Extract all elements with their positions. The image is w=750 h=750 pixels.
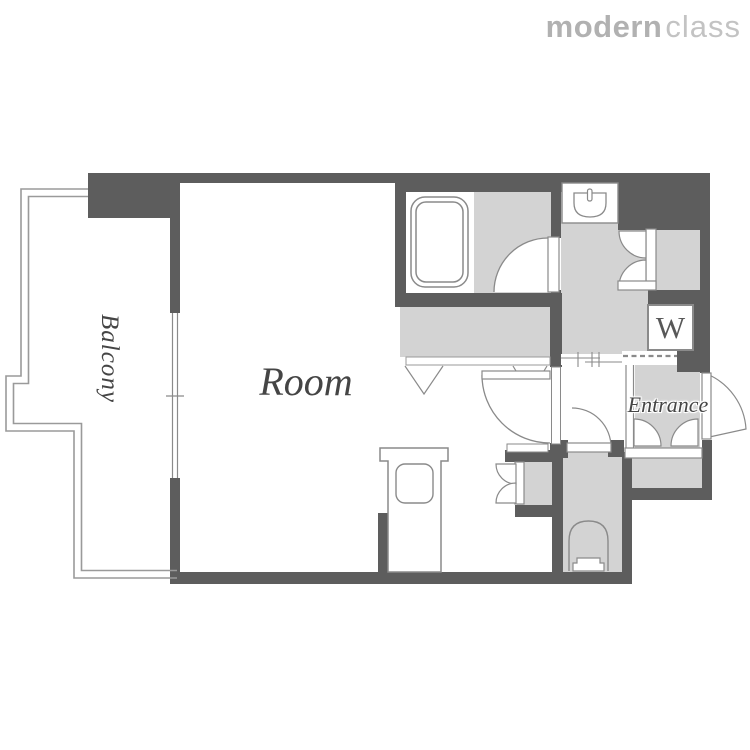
- wall-segment: [551, 192, 561, 238]
- entrance-label: Entrance: [598, 392, 738, 418]
- brand-logo: modernclass: [546, 8, 741, 46]
- kitchen-counter: [380, 448, 448, 572]
- overhead-cabinet-line: [622, 351, 677, 364]
- room-closet-floor: [400, 300, 550, 357]
- balcony-railing-outer: [6, 189, 177, 578]
- wall-segment: [170, 572, 632, 584]
- upper-closet-floor: [655, 228, 700, 290]
- closet-door-leaf: [496, 483, 516, 503]
- wall-segment: [170, 478, 180, 583]
- room-door-leaf: [482, 371, 550, 379]
- wall-segment: [618, 173, 710, 230]
- bathroom-door-leaf: [548, 237, 559, 292]
- closet-door-leaf: [496, 464, 516, 484]
- room-door: [482, 367, 561, 452]
- balcony-label: Balcony: [95, 314, 123, 424]
- bathtub: [411, 197, 468, 287]
- closet-door-frame: [646, 229, 656, 289]
- toilet: [569, 521, 608, 571]
- room-label: Room: [238, 358, 374, 405]
- wall-segment: [550, 305, 562, 367]
- closet-track: [406, 357, 550, 365]
- toilet-door-leaf: [567, 443, 611, 452]
- wall-segment: [395, 173, 562, 192]
- sliding-door: [561, 352, 622, 367]
- small-closet-doors: [496, 462, 524, 504]
- closet-door-sill: [618, 281, 656, 290]
- brand-logo-light: class: [665, 9, 741, 44]
- floor-plan-page: modernclass: [0, 0, 750, 750]
- balcony-window: [166, 313, 184, 478]
- kitchen-sink: [396, 464, 433, 503]
- wall-segment: [515, 505, 553, 517]
- shoe-closet-cabinet: [625, 448, 702, 458]
- balcony-railing: [6, 189, 177, 578]
- wash-basin-tap: [588, 189, 593, 201]
- wall-segment: [552, 443, 563, 573]
- wall-segment: [395, 293, 562, 307]
- wall-segment: [170, 183, 180, 313]
- toilet-tank: [573, 558, 604, 571]
- room-door-frame: [552, 367, 561, 444]
- wash-basin: [562, 183, 618, 223]
- room-door-threshold: [507, 444, 548, 452]
- brand-logo-bold: modern: [546, 9, 663, 44]
- wall-segment: [88, 173, 180, 218]
- wall-segment: [632, 488, 712, 500]
- wall-segment: [622, 448, 632, 577]
- entrance-step: [632, 458, 702, 488]
- folding-door-icon: [405, 366, 443, 394]
- washer-label: W: [648, 305, 693, 350]
- wall-segment: [395, 183, 406, 298]
- wall-segment: [677, 350, 710, 372]
